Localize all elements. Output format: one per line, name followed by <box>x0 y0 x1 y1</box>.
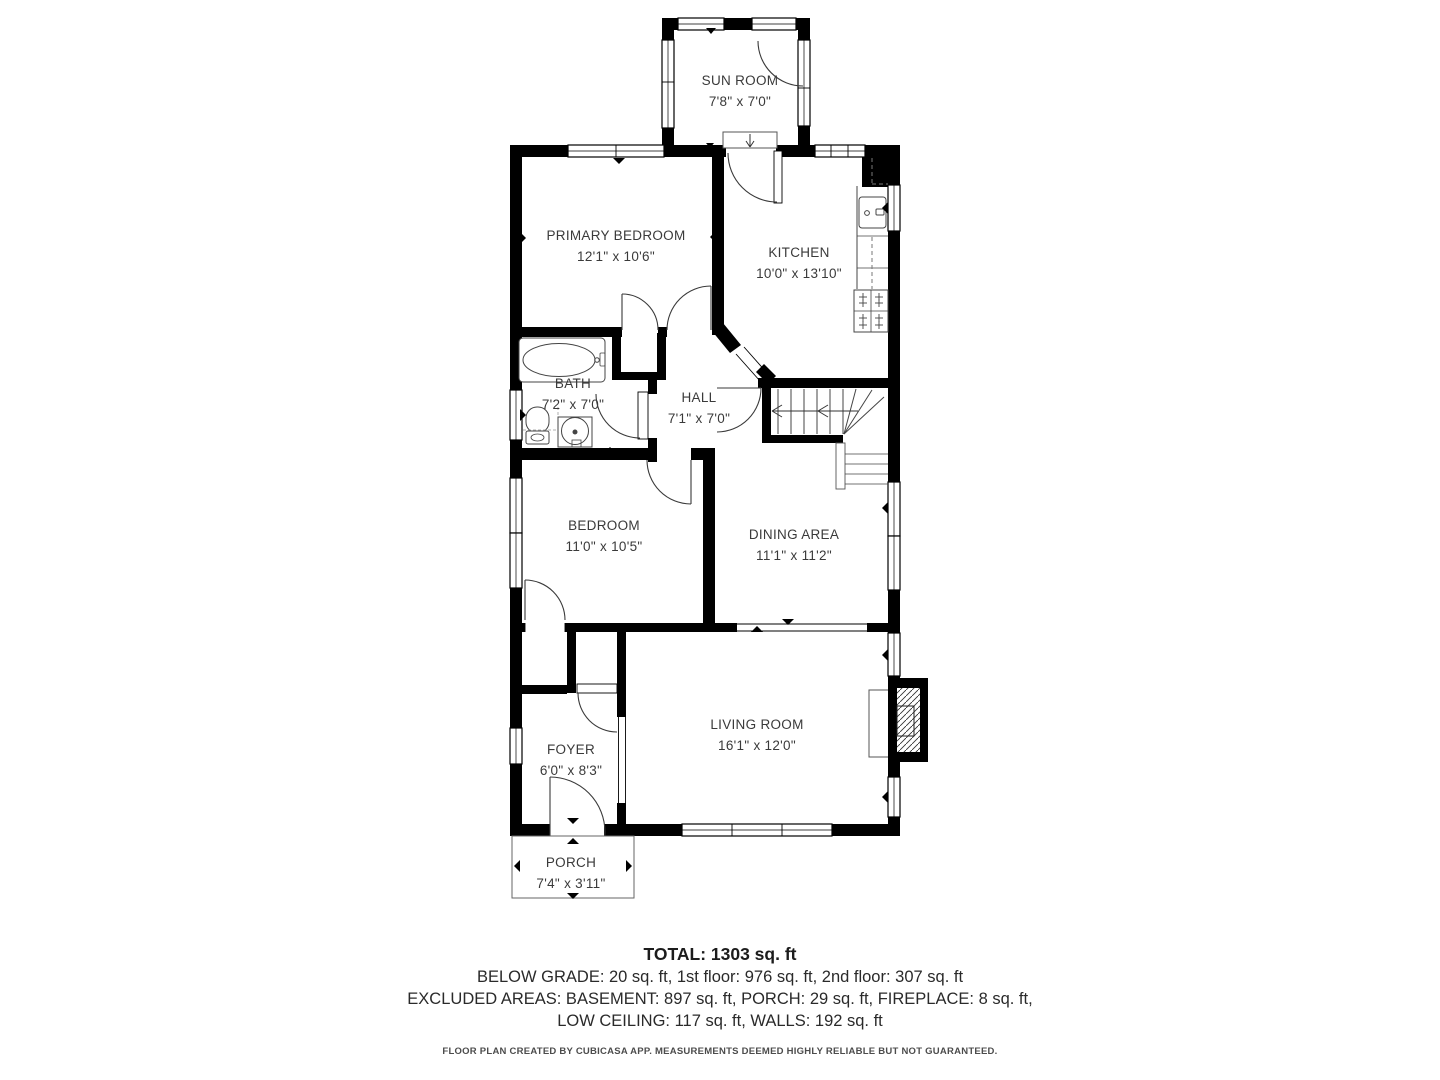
room-label-kitchen: KITCHEN 10'0" x 13'10" <box>756 242 842 284</box>
room-dims: 12'1" x 10'6" <box>546 246 685 267</box>
floor-plan-page: SUN ROOM 7'8" x 7'0" PRIMARY BEDROOM 12'… <box>0 0 1440 1080</box>
window <box>510 533 522 588</box>
room-label-dining-area: DINING AREA 11'1" x 11'2" <box>749 524 839 566</box>
excluded-areas-text-2: LOW CEILING: 117 sq. ft, WALLS: 192 sq. … <box>0 1010 1440 1032</box>
kitchen-sink-icon <box>859 197 886 228</box>
window <box>510 478 522 533</box>
room-name: DINING AREA <box>749 524 839 545</box>
room-name: HALL <box>668 387 730 408</box>
window <box>888 185 900 231</box>
disclaimer-text: FLOOR PLAN CREATED BY CUBICASA APP. MEAS… <box>0 1046 1440 1057</box>
window <box>682 824 832 836</box>
window <box>888 633 900 676</box>
door-arc <box>647 460 691 504</box>
door-arc <box>525 580 565 620</box>
floor-plan-drawing <box>0 0 1440 1080</box>
door-arc <box>622 294 658 330</box>
window <box>662 40 674 128</box>
room-name: BATH <box>542 373 604 394</box>
excluded-areas-text: EXCLUDED AREAS: BASEMENT: 897 sq. ft, PO… <box>0 988 1440 1010</box>
total-area-text: TOTAL: 1303 sq. ft <box>0 942 1440 966</box>
window <box>888 536 900 590</box>
room-name: SUN ROOM <box>702 70 779 91</box>
room-dims: 11'0" x 10'5" <box>566 536 643 557</box>
area-summary: TOTAL: 1303 sq. ft BELOW GRADE: 20 sq. f… <box>0 942 1440 1057</box>
room-dims: 16'1" x 12'0" <box>710 735 803 756</box>
entry-step-icon <box>723 132 777 148</box>
window <box>815 145 865 157</box>
room-name: PRIMARY BEDROOM <box>546 225 685 246</box>
stove-icon <box>854 290 888 332</box>
room-name: FOYER <box>540 739 602 760</box>
room-label-primary-bedroom: PRIMARY BEDROOM 12'1" x 10'6" <box>546 225 685 267</box>
window <box>752 18 796 30</box>
room-label-living-room: LIVING ROOM 16'1" x 12'0" <box>710 714 803 756</box>
room-name: BEDROOM <box>566 515 643 536</box>
room-label-porch: PORCH 7'4" x 3'11" <box>536 852 605 894</box>
window <box>798 40 810 126</box>
door-arc <box>667 286 711 330</box>
room-label-bath: BATH 7'2" x 7'0" <box>542 373 604 415</box>
window <box>888 482 900 536</box>
door-arc <box>577 684 617 732</box>
door-arc <box>728 151 782 203</box>
window <box>888 777 900 817</box>
room-dims: 7'4" x 3'11" <box>536 873 605 894</box>
room-label-hall: HALL 7'1" x 7'0" <box>668 387 730 429</box>
room-dims: 11'1" x 11'2" <box>749 545 839 566</box>
window <box>568 145 664 157</box>
room-dims: 7'1" x 7'0" <box>668 408 730 429</box>
room-name: LIVING ROOM <box>710 714 803 735</box>
window <box>678 18 724 30</box>
room-label-sun-room: SUN ROOM 7'8" x 7'0" <box>702 70 779 112</box>
bathroom-sink-icon <box>558 417 592 447</box>
room-dims: 10'0" x 13'10" <box>756 263 842 284</box>
room-dims: 7'2" x 7'0" <box>542 394 604 415</box>
room-name: KITCHEN <box>756 242 842 263</box>
room-dims: 6'0" x 8'3" <box>540 760 602 781</box>
room-name: PORCH <box>536 852 605 873</box>
room-label-bedroom: BEDROOM 11'0" x 10'5" <box>566 515 643 557</box>
room-label-foyer: FOYER 6'0" x 8'3" <box>540 739 602 781</box>
fireplace-icon <box>869 678 928 762</box>
floors-area-text: BELOW GRADE: 20 sq. ft, 1st floor: 976 s… <box>0 966 1440 988</box>
window <box>510 728 522 764</box>
room-dims: 7'8" x 7'0" <box>702 91 779 112</box>
